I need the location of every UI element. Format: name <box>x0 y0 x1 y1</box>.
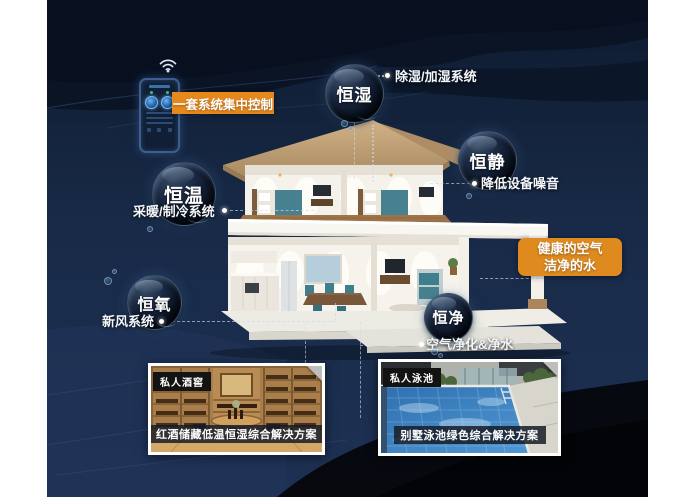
pool-photo: 私人泳池 别墅泳池绿色综合解决方案 <box>381 362 558 453</box>
infographic-canvas: 一套系统集中控制 恒湿 除湿/加湿系统 恒静 降低设备噪音 恒温 采暖/制冷系统… <box>0 0 700 497</box>
device-buttons <box>144 128 175 132</box>
bullet-quiet <box>472 181 477 186</box>
bubble-oxygen-text: 恒氧 <box>137 291 171 315</box>
system-label-oxygen: 新风系统 <box>102 314 154 330</box>
device-titlebar <box>149 85 171 88</box>
bubble-quiet-text: 恒静 <box>470 148 506 173</box>
bubble-purity-text: 恒净 <box>432 307 464 328</box>
connector-callout <box>480 278 544 279</box>
decor-bubble <box>466 193 472 199</box>
pool-card: 私人泳池 别墅泳池绿色综合解决方案 <box>378 359 561 456</box>
connector-quiet <box>430 183 470 184</box>
wine-cellar-photo: 私人酒窖 红酒储藏低温恒湿综合解决方案 <box>151 366 322 452</box>
bullet-oxygen <box>159 319 164 324</box>
callout-line1: 健康的空气 <box>537 240 602 257</box>
bubble-humidity-text: 恒湿 <box>337 81 373 106</box>
bubble-purity: 恒净 <box>424 293 473 342</box>
connector-oxygen <box>167 321 335 322</box>
decor-bubble <box>104 277 112 285</box>
connector-temperature <box>230 210 314 211</box>
wifi-icon <box>158 56 178 73</box>
healthy-air-callout: 健康的空气 洁净的水 <box>518 238 622 276</box>
connector-house-to-wine <box>305 322 306 363</box>
pool-tag: 私人泳池 <box>383 368 441 387</box>
decor-bubble <box>348 126 353 131</box>
decor-bubble <box>431 348 438 355</box>
wine-cellar-card: 私人酒窖 红酒储藏低温恒湿综合解决方案 <box>148 363 325 455</box>
device-dials <box>144 96 175 109</box>
system-label-quiet: 降低设备噪音 <box>481 176 559 192</box>
system-label-temperature: 采暖/制冷系统 <box>133 204 215 220</box>
connector-oxygen-up <box>335 303 336 321</box>
central-control-label: 一套系统集中控制 <box>172 92 274 114</box>
system-label-humidity: 除湿/加湿系统 <box>395 69 477 85</box>
pool-caption: 别墅泳池绿色综合解决方案 <box>394 426 546 444</box>
thermostat-dial-icon <box>145 96 158 109</box>
system-label-purity: 空气净化&净水 <box>426 337 513 353</box>
device-readout-rows <box>144 112 175 124</box>
device-status-leds <box>144 91 175 94</box>
wine-cellar-caption: 红酒储藏低温恒湿综合解决方案 <box>151 425 322 443</box>
connector-house-to-pool <box>360 322 361 418</box>
corner-fold <box>307 366 322 381</box>
content-area: 一套系统集中控制 恒湿 除湿/加湿系统 恒静 降低设备噪音 恒温 采暖/制冷系统… <box>47 0 648 497</box>
decor-bubble <box>438 353 443 358</box>
connector-humidity-down <box>372 125 374 182</box>
corner-fold <box>543 362 558 377</box>
callout-line2: 洁净的水 <box>544 257 596 274</box>
bubble-humidity: 恒湿 <box>325 64 384 123</box>
bullet-humidity <box>385 73 390 78</box>
control-panel-device <box>139 78 180 153</box>
decor-bubble <box>147 226 153 232</box>
decor-bubble <box>341 120 348 127</box>
bullet-purity <box>419 342 424 347</box>
wine-cellar-tag: 私人酒窖 <box>153 372 211 391</box>
decor-bubble <box>112 269 117 274</box>
house-illustration <box>195 115 575 360</box>
bullet-temperature <box>222 208 227 213</box>
connector-purity <box>360 345 418 346</box>
